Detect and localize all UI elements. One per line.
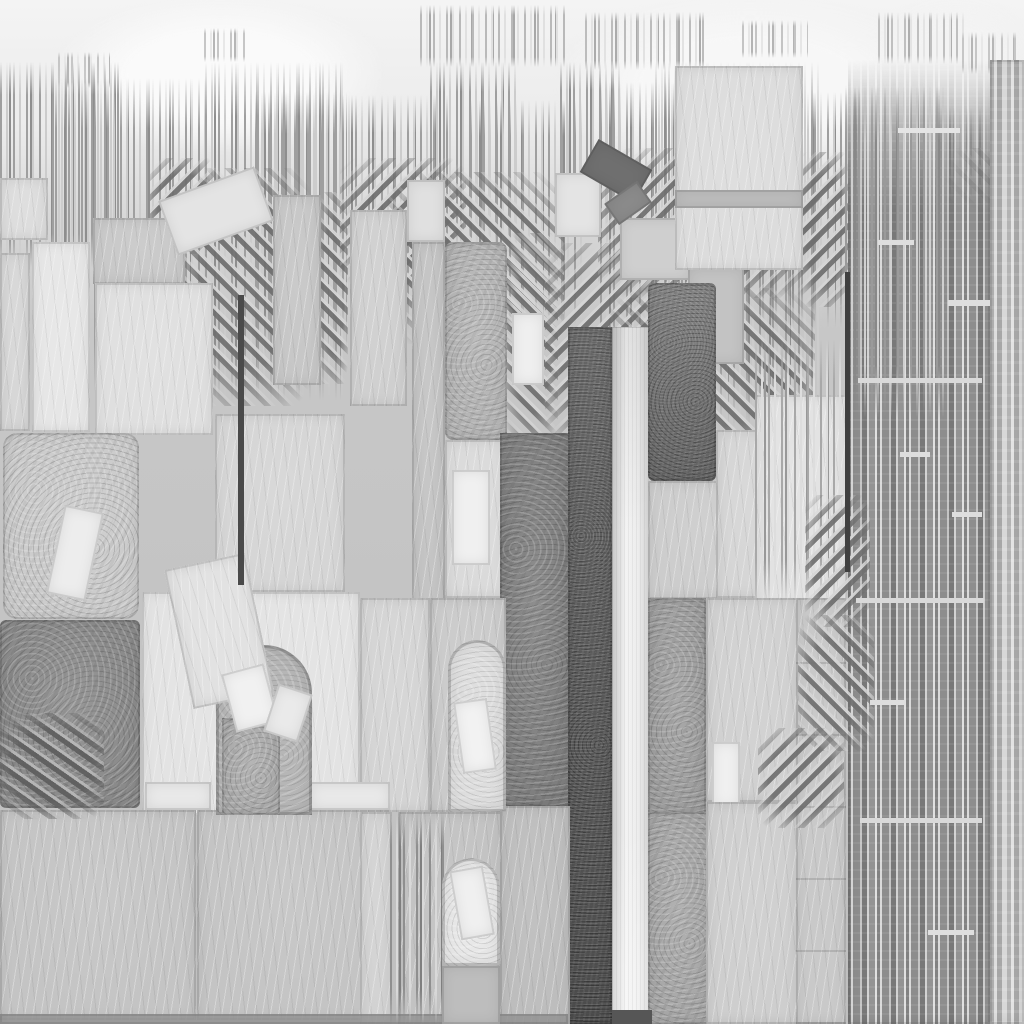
barcode-field-light xyxy=(990,60,1024,1024)
hatch-front-1 xyxy=(805,495,870,627)
dark-bar xyxy=(568,327,612,1024)
light-column xyxy=(32,242,90,432)
dark-line-right xyxy=(845,272,850,572)
right-top-band xyxy=(675,190,803,208)
dark-rect xyxy=(648,283,716,481)
barcode-dash-9 xyxy=(878,240,914,245)
barcode-dash-7 xyxy=(928,930,974,935)
center-under-white xyxy=(452,470,490,565)
barcode-dash-10 xyxy=(898,128,960,133)
bottom-slab-a xyxy=(0,810,196,1020)
drip-cluster-3 xyxy=(742,20,808,58)
texture-canvas xyxy=(0,0,1024,1024)
barcode-dash-8 xyxy=(952,512,982,517)
small-light-a xyxy=(145,782,211,810)
center-big-block xyxy=(445,242,507,440)
drip-cluster-1 xyxy=(420,5,566,67)
center-small xyxy=(407,180,445,242)
hatch-9 xyxy=(800,152,850,307)
barcode-dash-4 xyxy=(948,300,990,306)
bottom-block xyxy=(500,806,570,1024)
right-top-light xyxy=(675,66,803,270)
bottom-stroke-cluster xyxy=(390,812,444,1024)
barcode-dash-5 xyxy=(900,452,930,457)
hatch-front-5 xyxy=(0,713,104,819)
wall2-left xyxy=(360,598,430,812)
barcode-dash-1 xyxy=(858,378,982,383)
drip-cluster-4 xyxy=(878,12,966,64)
right-col-window xyxy=(712,742,740,808)
barcode-dash-3 xyxy=(860,818,982,823)
center-top-light xyxy=(555,173,601,237)
center-column xyxy=(350,210,407,406)
center-strip xyxy=(412,242,445,642)
left-edge-block-a xyxy=(0,178,48,240)
hatch-front-3 xyxy=(758,728,844,828)
grain-strip-a xyxy=(648,598,706,814)
bar-foot-shadow xyxy=(612,1010,652,1024)
stack-column xyxy=(273,195,321,385)
hatch-window xyxy=(512,313,544,385)
mid-dark-column xyxy=(500,433,570,807)
light-gradient-bar xyxy=(612,327,652,1024)
arch-3-base xyxy=(442,966,500,1024)
right-col-b xyxy=(706,802,798,1024)
grain-strip-b xyxy=(648,812,710,1024)
left-edge-block-b xyxy=(0,253,30,431)
dark-line-center xyxy=(238,295,244,585)
drip-cluster-5 xyxy=(204,28,248,62)
barcode-dash-6 xyxy=(870,700,906,705)
barcode-dash-2 xyxy=(856,598,984,603)
bottom-left-strip xyxy=(360,812,392,1024)
small-light-b xyxy=(310,782,390,810)
tower-strokes xyxy=(845,88,947,418)
upper-block-b xyxy=(95,283,213,435)
